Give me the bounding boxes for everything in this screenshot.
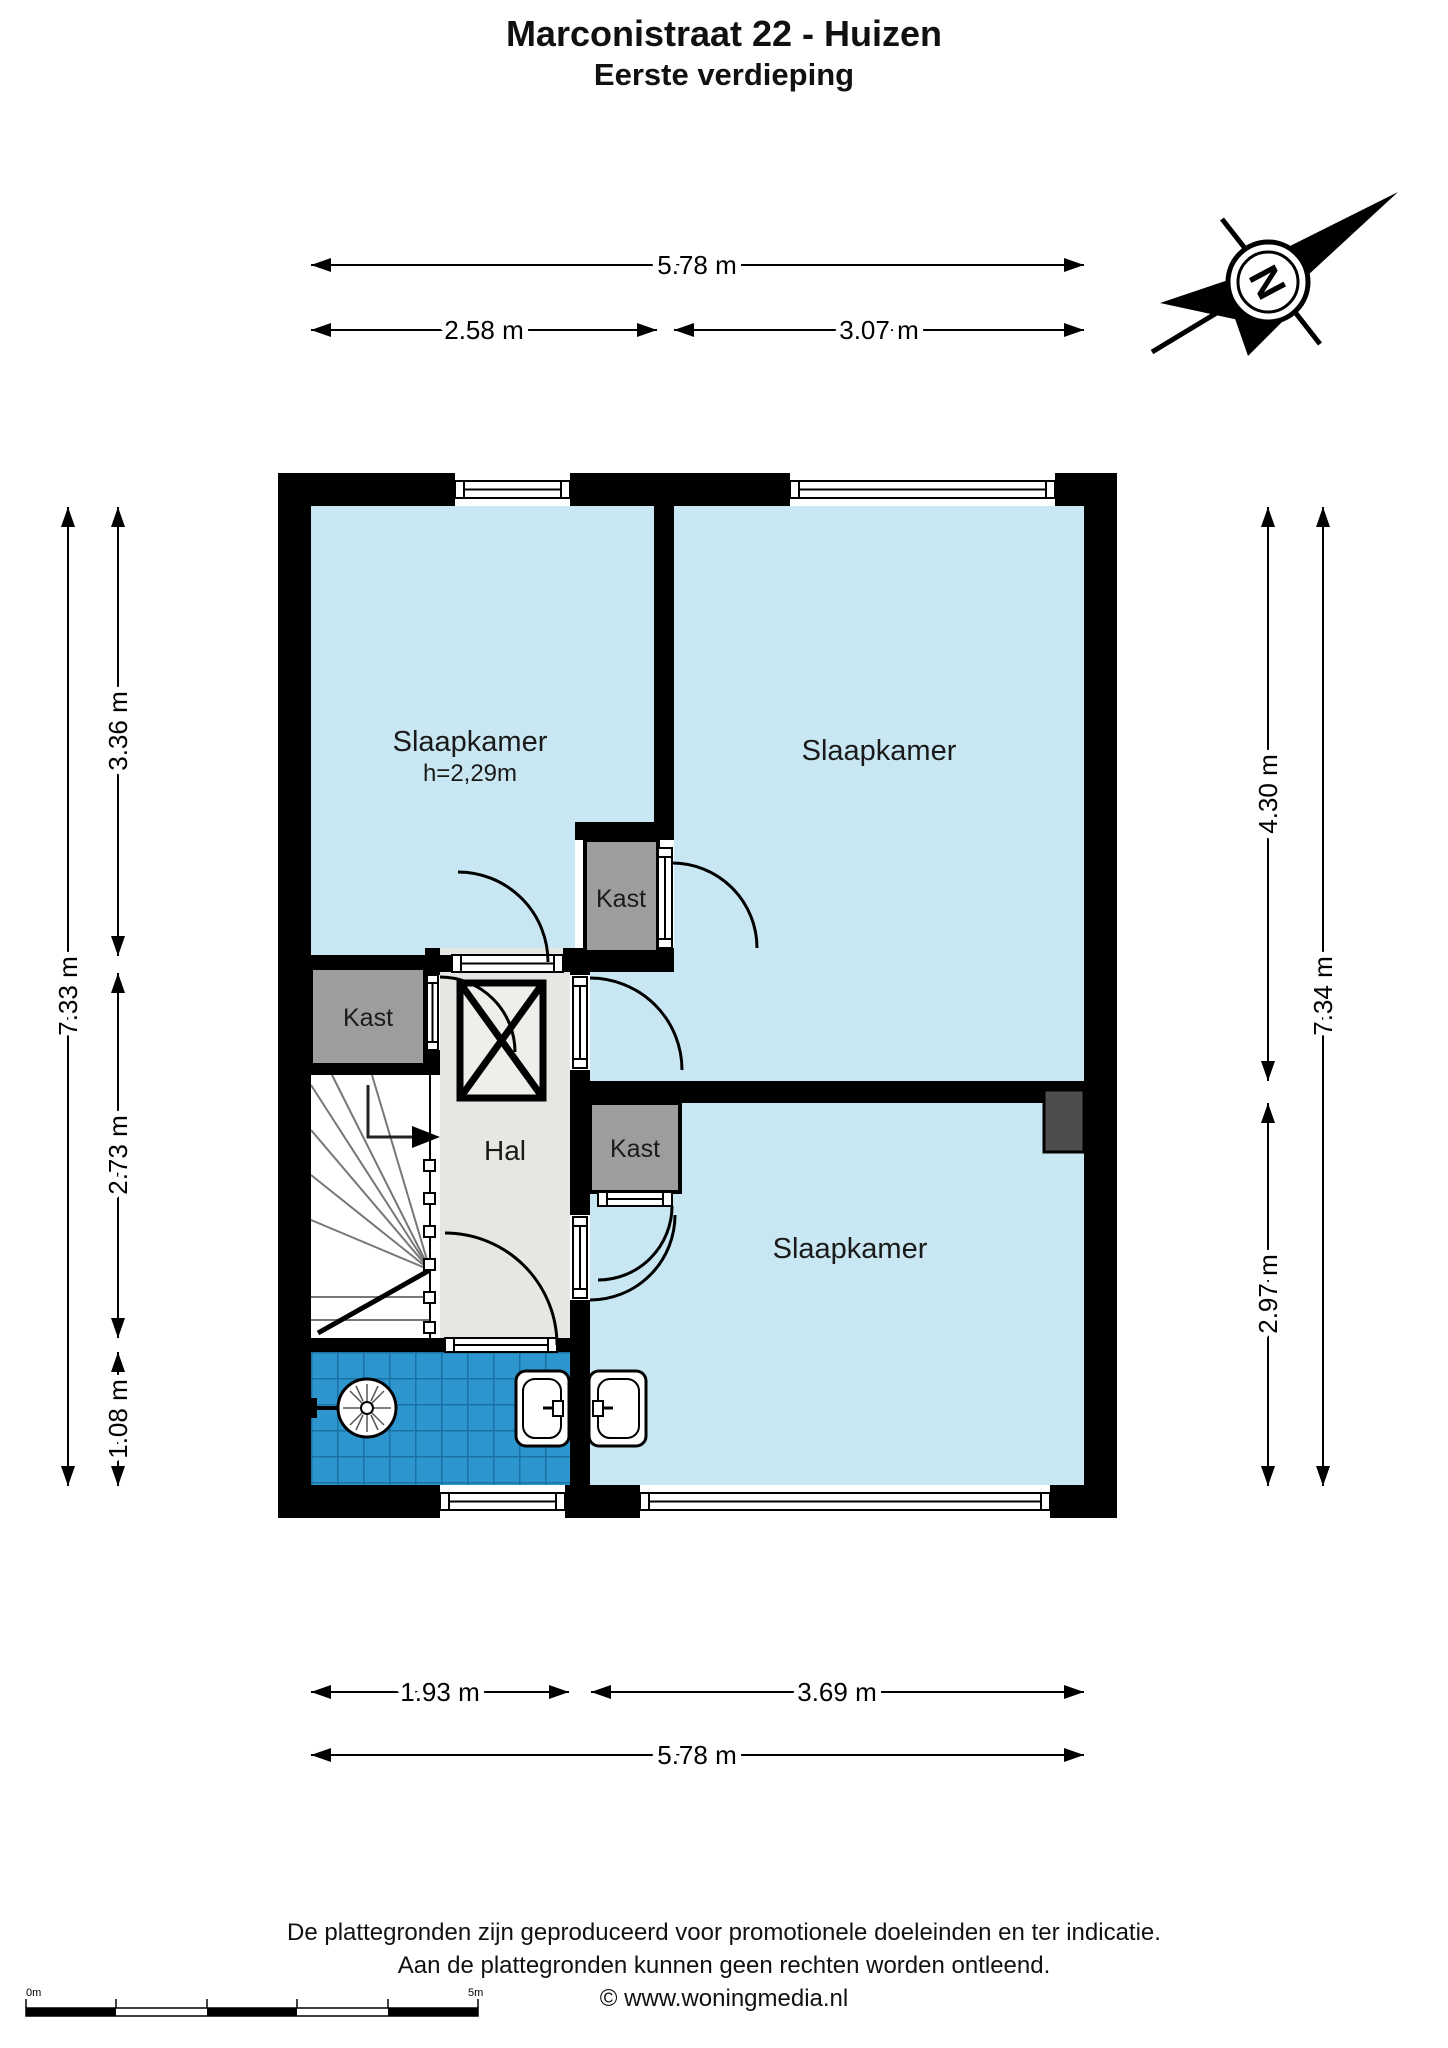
dimension-label: 3.07 m xyxy=(839,315,919,345)
dimension-left-top: 3.36 m xyxy=(103,507,133,956)
window-icon-bottom-right xyxy=(640,1485,1050,1518)
dimension-bottom-total: 5.78 m xyxy=(311,1740,1084,1770)
room-height-note-bedroom-1: h=2,29m xyxy=(423,760,517,787)
compass-rose-icon: N xyxy=(1152,192,1398,356)
room-label-closet-left: Kast xyxy=(343,1004,393,1032)
dimension-label: 5.78 m xyxy=(657,250,737,280)
dimension-label: 1.93 m xyxy=(400,1677,480,1707)
room-label-hall: Hal xyxy=(484,1135,526,1166)
door-leaf-closet-bottom xyxy=(598,1192,672,1206)
dimension-top-right: 3.07 m xyxy=(674,315,1084,345)
dimension-right-bottom: 2.97 m xyxy=(1253,1103,1283,1486)
dimension-label: 7.34 m xyxy=(1308,956,1338,1036)
disclaimer-line-2: Aan de plattegronden kunnen geen rechten… xyxy=(0,1949,1448,1982)
dimension-label: 5.78 m xyxy=(657,1740,737,1770)
door-leaf-bedroom-3 xyxy=(570,1215,590,1300)
dimension-label: 7.33 m xyxy=(53,956,83,1036)
sink-icon-bedroom-3 xyxy=(589,1371,646,1446)
dimension-right-top: 4.30 m xyxy=(1253,507,1283,1081)
dimension-left-middle: 2.73 m xyxy=(103,973,133,1338)
door-leaf-bathroom xyxy=(445,1338,557,1352)
dimension-label: 3.36 m xyxy=(103,691,133,771)
room-label-bedroom-2: Slaapkamer xyxy=(802,735,957,767)
dimension-label: 2.97 m xyxy=(1253,1254,1283,1334)
window-icon-top-right xyxy=(790,473,1055,506)
dimension-left-total: 7.33 m xyxy=(53,507,83,1486)
dimension-label: 2.58 m xyxy=(444,315,524,345)
window-icon-top-left xyxy=(455,473,570,506)
copyright-line: © www.woningmedia.nl xyxy=(0,1982,1448,2015)
door-leaf-closet-middle xyxy=(658,848,672,948)
sink-icon-bathroom xyxy=(516,1371,569,1446)
door-leaf-bedroom-1 xyxy=(452,955,563,972)
room-label-closet-middle: Kast xyxy=(596,885,646,913)
staircase xyxy=(311,1075,440,1338)
dimension-left-bottom: 1.08 m xyxy=(103,1352,133,1486)
room-label-closet-bottom: Kast xyxy=(610,1135,660,1163)
wall-niche-duct xyxy=(1044,1090,1084,1152)
stair-void-icon xyxy=(460,983,543,1098)
disclaimer-block: De plattegronden zijn geproduceerd voor … xyxy=(0,1916,1448,2015)
room-label-bedroom-1: Slaapkamer xyxy=(393,726,548,758)
dimension-label: 4.30 m xyxy=(1253,754,1283,834)
dimension-label: 2.73 m xyxy=(103,1115,133,1195)
dimension-top-left: 2.58 m xyxy=(311,315,657,345)
door-leaf-closet-left xyxy=(427,975,438,1050)
window-icon-bottom-left xyxy=(440,1485,565,1518)
dimension-bottom-right: 3.69 m xyxy=(591,1677,1084,1707)
room-label-bedroom-3: Slaapkamer xyxy=(773,1233,928,1265)
dimension-label: 1.08 m xyxy=(103,1379,133,1459)
dimension-label: 3.69 m xyxy=(797,1677,877,1707)
dimension-right-total: 7.34 m xyxy=(1308,507,1338,1486)
disclaimer-line-1: De plattegronden zijn geproduceerd voor … xyxy=(0,1916,1448,1949)
dimension-bottom-left: 1.93 m xyxy=(311,1677,569,1707)
floorplan-page: Marconistraat 22 - Huizen Eerste verdiep… xyxy=(0,0,1448,2048)
dimension-top-total: 5.78 m xyxy=(311,250,1084,280)
door-leaf-bedroom-2 xyxy=(570,975,590,1070)
floor-plan-svg: Slaapkamer h=2,29m Slaapkamer Slaapkamer… xyxy=(0,0,1448,2048)
